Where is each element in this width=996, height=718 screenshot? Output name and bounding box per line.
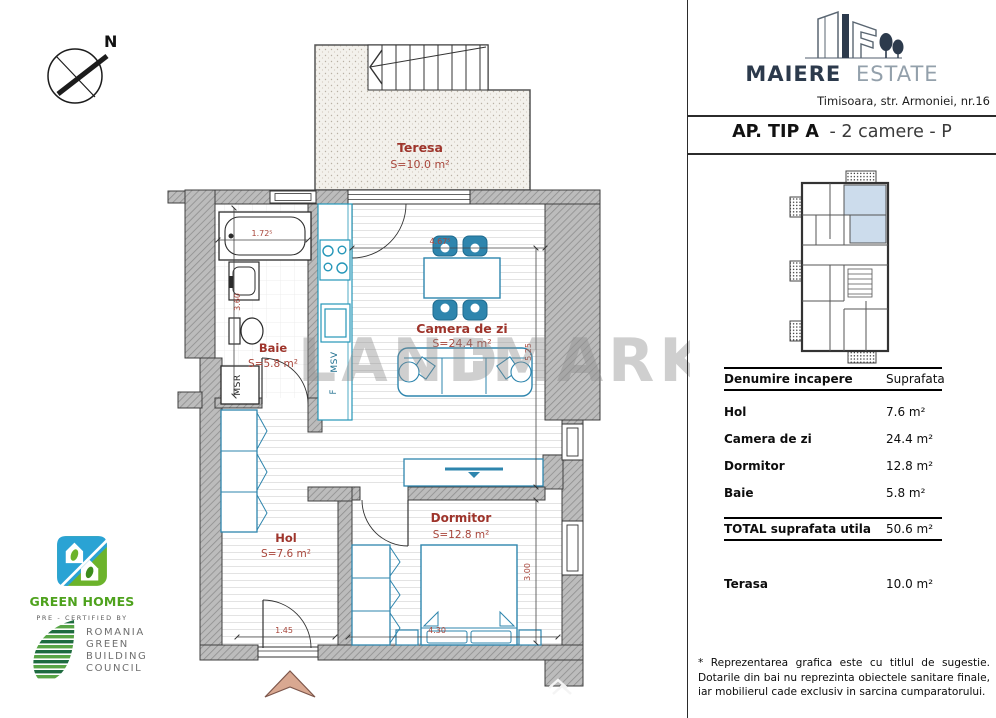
compass-rose: N <box>48 32 117 103</box>
bathroom-label: Baie <box>259 341 287 355</box>
title-rule-bottom <box>687 153 996 155</box>
council-line: ROMANIA <box>86 627 147 639</box>
council-line: GREEN <box>86 639 147 651</box>
company-logo <box>800 4 910 66</box>
logo-trees <box>880 33 904 58</box>
bedroom-furniture <box>352 545 541 645</box>
bathroom-area: S=5.8 m² <box>248 358 298 370</box>
hall-area: S=7.6 m² <box>261 548 311 560</box>
disclaimer-line: * Reprezentarea grafica este cu titlul d… <box>698 656 990 671</box>
company-address: Timisoara, str. Armoniei, nr.16 <box>687 94 990 108</box>
areas-table: Denumire incapere Suprafata Hol 7.6 m² C… <box>724 367 942 591</box>
row-label: Hol <box>724 405 746 419</box>
apartment-title: AP. TIP A - 2 camere - P <box>688 122 996 142</box>
company-name-primary: MAIERE <box>745 62 841 86</box>
row-label: Dormitor <box>724 459 785 473</box>
title-rule-top <box>687 115 996 117</box>
row-value: 7.6 m² <box>886 405 942 419</box>
council-name: ROMANIA GREEN BUILDING COUNCIL <box>86 627 147 674</box>
cooktop <box>320 240 350 280</box>
watermark-left: LAND <box>298 326 503 396</box>
terrace: Teresa S=10.0 m² <box>315 45 530 190</box>
terrace-label: Teresa <box>397 140 443 155</box>
row-value: 24.4 m² <box>886 432 942 446</box>
table-row: Hol 7.6 m² <box>724 405 942 419</box>
floorplan-sheet: N Teresa S=10.0 m² <box>0 0 996 718</box>
apartment-subtitle: - 2 camere - P <box>830 122 952 142</box>
tv-cabinet <box>404 459 543 486</box>
dim-living-width: 4.67⁵ <box>429 237 450 246</box>
council-line: COUNCIL <box>86 663 147 675</box>
column-area: Suprafata <box>886 372 942 386</box>
column-room: Denumire incapere <box>724 372 853 386</box>
dim-entry-width: 1.45 <box>275 626 293 635</box>
hall-label: Hol <box>275 531 296 545</box>
terrace-area: S=10.0 m² <box>390 158 449 171</box>
table-terrace-row: Terasa 10.0 m² <box>724 577 942 591</box>
nightstand-right <box>519 630 541 645</box>
row-label: Camera de zi <box>724 432 812 446</box>
compass-north-label: N <box>104 32 117 51</box>
dim-bedroom-height: 3.00 <box>523 563 532 581</box>
table-row: Dormitor 12.8 m² <box>724 459 942 473</box>
highlighted-apartment <box>844 185 886 243</box>
disclaimer: * Reprezentarea grafica este cu titlul d… <box>698 656 990 700</box>
council-leaf-icon <box>30 620 78 682</box>
watermark: LAND MARK <box>298 326 690 396</box>
terrace-row-label: Terasa <box>724 577 768 591</box>
bedroom-area: S=12.8 m² <box>433 529 490 541</box>
apartment-type: AP. TIP A <box>732 122 819 142</box>
table-total-row: TOTAL suprafata utila 50.6 m² <box>724 517 942 541</box>
dim-bath-depth: 3.60 <box>233 293 242 311</box>
disclaimer-line: Dotarile din bai nu reprezinta obiectele… <box>698 671 990 686</box>
total-value: 50.6 m² <box>886 522 942 536</box>
green-homes-icon <box>56 535 108 587</box>
row-value: 5.8 m² <box>886 486 942 500</box>
row-label: Baie <box>724 486 754 500</box>
council-line: BUILDING <box>86 651 147 663</box>
company-name-secondary: ESTATE <box>856 62 939 86</box>
dining-table <box>424 258 500 298</box>
green-homes-label: GREEN HOMES <box>22 594 142 609</box>
row-value: 12.8 m² <box>886 459 942 473</box>
dim-bedroom-width: 4.30 <box>428 626 446 635</box>
company-name: MAIERE ESTATE <box>688 62 996 86</box>
washing-machine: MSR <box>221 366 259 404</box>
table-header: Denumire incapere Suprafata <box>724 367 942 391</box>
table-row: Camera de zi 24.4 m² <box>724 432 942 446</box>
terrace-stairs <box>368 45 488 90</box>
terrace-row-value: 10.0 m² <box>886 577 942 591</box>
washing-machine-label: MSR <box>233 374 243 395</box>
dim-bath-width: 1.72⁵ <box>251 229 272 238</box>
bedroom-label: Dormitor <box>431 511 492 525</box>
entrance-arrow <box>265 671 315 697</box>
disclaimer-line: iar mobilierul cade exclusiv in sarcina … <box>698 685 990 700</box>
watermark-right: MARK <box>492 326 690 396</box>
total-label: TOTAL suprafata utila <box>724 522 871 536</box>
company-logo-icon <box>800 4 910 62</box>
green-homes-badge: GREEN HOMES PRE - CERTIFIED BY <box>22 535 142 622</box>
nightstand-left <box>396 630 418 645</box>
table-row: Baie 5.8 m² <box>724 486 942 500</box>
green-building-council-badge: ROMANIA GREEN BUILDING COUNCIL <box>30 620 147 682</box>
building-overview-plan <box>786 169 904 369</box>
stairwell <box>848 269 872 297</box>
